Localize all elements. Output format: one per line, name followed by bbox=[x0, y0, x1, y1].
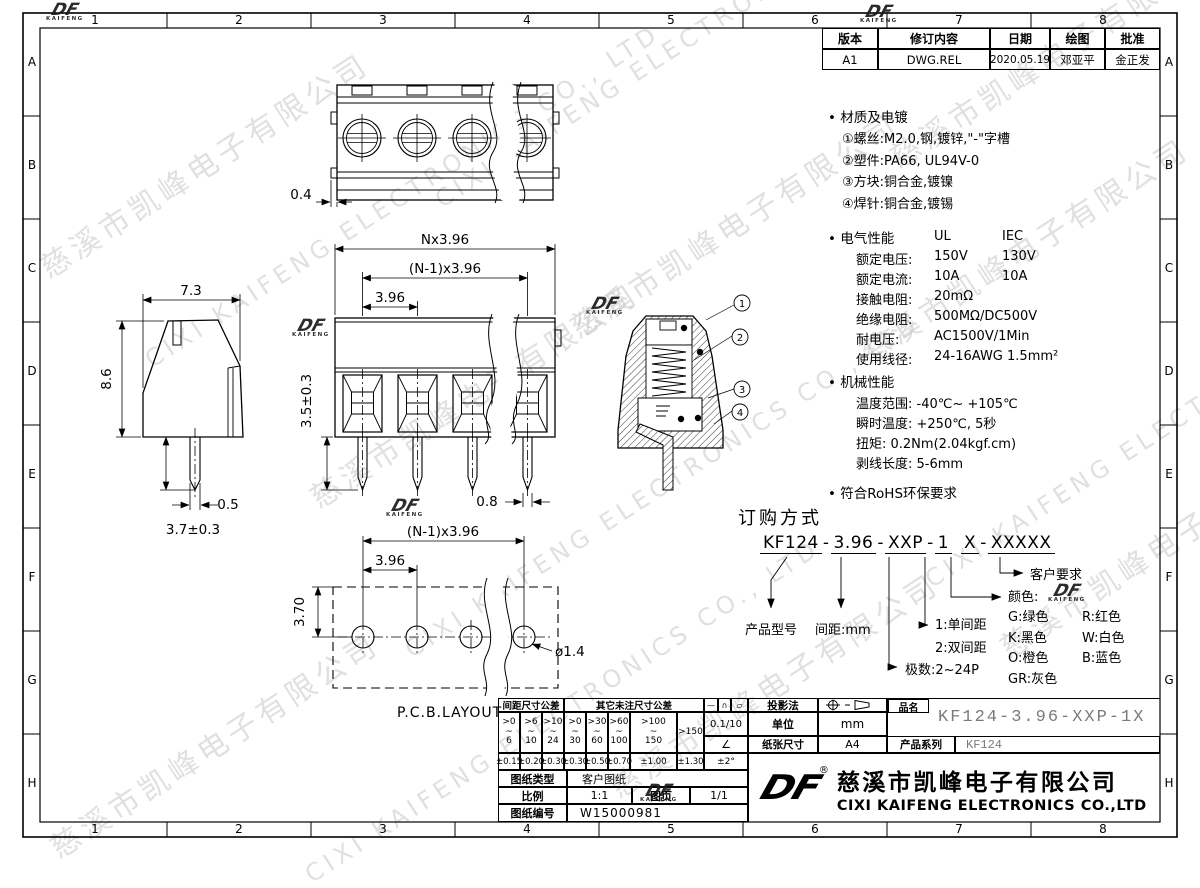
angle-icon: ∠ bbox=[704, 736, 748, 753]
spec-ul: 24-16AWG 1.5mm² bbox=[934, 349, 1002, 369]
tol-value: ±0.30 bbox=[564, 753, 586, 770]
grid-col-label: 5 bbox=[662, 822, 680, 836]
df-stamp-icon: DFKAIFENG bbox=[640, 783, 678, 804]
part-sep: - bbox=[822, 533, 831, 553]
company-area: DF® 慈溪市凯峰电子有限公司 CIXI KAIFENG ELECTRONICS… bbox=[748, 753, 1160, 822]
spec-label: 额定电压: bbox=[856, 249, 934, 269]
grid-row-label: C bbox=[23, 261, 41, 275]
color-code: B:蓝色 bbox=[1082, 647, 1121, 668]
ordering-model-label: 产品型号 bbox=[745, 619, 797, 638]
grid-row-label: H bbox=[23, 776, 41, 790]
tol-range: >30 ~ 60 bbox=[586, 712, 608, 753]
tol-pitch-header: 间距尺寸公差 bbox=[498, 698, 564, 712]
unit-value: mm bbox=[818, 712, 887, 736]
tol-range: >10 ~ 24 bbox=[542, 712, 564, 753]
page-value: 1/1 bbox=[690, 787, 748, 804]
straightness-icon: — bbox=[704, 698, 718, 712]
grid-col-label: 3 bbox=[374, 822, 392, 836]
mechanical-item: 剥线长度: 5-6mm bbox=[856, 453, 1018, 473]
revision-drawn: 邓亚平 bbox=[1050, 49, 1105, 70]
part-pitch: 3.96 bbox=[831, 533, 877, 554]
material-title: 材质及电镀 bbox=[828, 106, 908, 126]
part-series: KF124 bbox=[760, 533, 822, 554]
df-stamp-icon: DFKAIFENG bbox=[386, 498, 424, 519]
rohs-note: 符合RoHS环保要求 bbox=[828, 482, 957, 502]
grid-row-label: G bbox=[1160, 673, 1178, 687]
ordering-title: 订购方式 bbox=[738, 504, 822, 530]
df-stamp-icon: DFKAIFENG bbox=[586, 296, 624, 317]
ordering-poles-label: 极数:2~24P bbox=[905, 659, 979, 678]
paper-label: 纸张尺寸 bbox=[748, 736, 818, 753]
tol-value: ±0.20 bbox=[520, 753, 542, 770]
grid-row-label: F bbox=[1160, 570, 1178, 584]
color-code: W:白色 bbox=[1082, 627, 1124, 648]
ordering-pitch-opt2: 2:双间距 bbox=[935, 637, 987, 656]
grid-row-label: A bbox=[1160, 55, 1178, 69]
pcb-layout-caption: P.C.B.LAYOUT bbox=[397, 705, 502, 721]
revision-header-approved: 批准 bbox=[1105, 28, 1160, 49]
spec-label: 额定电流: bbox=[856, 269, 934, 289]
spec-iec: 130V bbox=[1002, 249, 1036, 269]
dim-front-span: (N-1)x3.96 bbox=[409, 261, 481, 277]
electrical-row: 接触电阻:20mΩ bbox=[856, 289, 1036, 309]
flatness-icon: ▱ bbox=[731, 698, 748, 712]
dim-front-pin-width: 0.8 bbox=[476, 494, 497, 510]
grid-col-label: 4 bbox=[518, 13, 536, 27]
tol-value: ±0.50 bbox=[586, 753, 608, 770]
spec-ul: 20mΩ bbox=[934, 289, 1002, 309]
part-rows: 1 bbox=[935, 533, 952, 554]
color-row: G:绿色R:红色 bbox=[1008, 606, 1124, 627]
material-list: ①螺丝:M2.0,钢,镀锌,"-"字槽 ②塑件:PA66, UL94V-0 ③方… bbox=[842, 128, 1010, 214]
revision-header-date: 日期 bbox=[990, 28, 1050, 49]
grid-col-label: 8 bbox=[1094, 13, 1112, 27]
engineering-drawing-sheet: { "watermark": {"cn": "慈溪市凯峰电子有限公司", "en… bbox=[0, 0, 1200, 850]
dim-side-width: 7.3 bbox=[180, 283, 201, 299]
ordering-part-number: KF124-3.96-XXP-1X-XXXXX bbox=[760, 533, 1055, 554]
color-row: GR:灰色 bbox=[1008, 668, 1124, 689]
df-stamp-icon: DFKAIFENG bbox=[292, 318, 330, 339]
df-stamp-icon: DFKAIFENG bbox=[46, 2, 84, 23]
grid-col-label: 7 bbox=[950, 822, 968, 836]
grid-row-label: B bbox=[1160, 158, 1178, 172]
color-code: K:黑色 bbox=[1008, 627, 1082, 648]
tol-value: ±1.30 bbox=[677, 753, 704, 770]
color-code: O:橙色 bbox=[1008, 647, 1082, 668]
spec-ul: AC1500V/1Min bbox=[934, 329, 1002, 349]
grid-row-label: A bbox=[23, 55, 41, 69]
spec-label: 绝缘电阻: bbox=[856, 309, 934, 329]
dim-pcb-row: 3.70 bbox=[292, 597, 308, 627]
spec-iec: 10A bbox=[1002, 269, 1027, 289]
callout-3: 3 bbox=[739, 385, 745, 396]
material-item: ④焊针:铜合金,镀锡 bbox=[842, 193, 1010, 215]
electrical-row: 额定电压:150V130V bbox=[856, 249, 1036, 269]
mechanical-item: 扭矩: 0.2Nm(2.04kgf.cm) bbox=[856, 433, 1018, 453]
pcb-layout-view: (N-1)x3.96 3.96 3.70 ø1.4 P.C.B.LAYOUT bbox=[292, 524, 585, 721]
spec-label: 使用线径: bbox=[856, 349, 934, 369]
grid-col-label: 7 bbox=[950, 13, 968, 27]
callout-4: 4 bbox=[737, 408, 743, 419]
grid-row-label: G bbox=[23, 673, 41, 687]
grid-col-label: 2 bbox=[230, 13, 248, 27]
electrical-title: 电气性能 bbox=[828, 227, 894, 247]
grid-row-label: B bbox=[23, 158, 41, 172]
part-color: X bbox=[961, 533, 979, 554]
company-name-en: CIXI KAIFENG ELECTRONICS CO.,LTD bbox=[837, 798, 1147, 814]
electrical-row: 绝缘电阻:500MΩ/DC500V bbox=[856, 309, 1036, 329]
electrical-row: 额定电流:10A10A bbox=[856, 269, 1036, 289]
color-code: G:绿色 bbox=[1008, 606, 1082, 627]
color-row: O:橙色B:蓝色 bbox=[1008, 647, 1124, 668]
mechanical-item: 瞬时温度: +250℃, 5秒 bbox=[856, 413, 1018, 433]
tol-range: >60 ~ 100 bbox=[608, 712, 630, 753]
dim-side-pin-length: 3.7±0.3 bbox=[166, 522, 220, 538]
revision-header-content: 修订内容 bbox=[878, 28, 990, 49]
tol-angle-value: ±2° bbox=[704, 753, 748, 770]
revision-content: DWG.REL bbox=[878, 49, 990, 70]
product-series-value: KF124 bbox=[955, 736, 1160, 753]
grid-col-label: 3 bbox=[374, 13, 392, 27]
product-name-label: 品名 bbox=[888, 699, 929, 713]
tol-flatness-value: 0.1/10 bbox=[704, 712, 748, 736]
product-series-text: KF124 bbox=[966, 738, 1002, 752]
tol-range: >6 ~ 10 bbox=[520, 712, 542, 753]
color-row: K:黑色W:白色 bbox=[1008, 627, 1124, 648]
grid-col-label: 4 bbox=[518, 822, 536, 836]
mechanical-item: 温度范围: -40℃~ +105℃ bbox=[856, 393, 1018, 413]
grid-col-label: 6 bbox=[806, 13, 824, 27]
grid-row-label: C bbox=[1160, 261, 1178, 275]
side-view: 7.3 8.6 0.5 3.7±0.3 bbox=[99, 283, 243, 538]
arc-icon: ∩ bbox=[718, 698, 731, 712]
ordering-color-list: G:绿色R:红色 K:黑色W:白色 O:橙色B:蓝色 GR:灰色 bbox=[1008, 606, 1124, 688]
grid-col-label: 6 bbox=[806, 822, 824, 836]
part-sep: - bbox=[979, 533, 988, 553]
mechanical-title: 机械性能 bbox=[828, 371, 894, 391]
ordering-color-title: 颜色: bbox=[1008, 586, 1038, 605]
callout-1: 1 bbox=[739, 299, 745, 310]
dim-front-pin-length: 3.5±0.3 bbox=[299, 374, 315, 428]
spec-label: 接触电阻: bbox=[856, 289, 934, 309]
ordering-pitch-opt1: 1:单间距 bbox=[935, 614, 987, 633]
part-custom: XXXXX bbox=[988, 533, 1055, 554]
revision-header-drawn: 绘图 bbox=[1050, 28, 1105, 49]
electrical-row: 耐电压:AC1500V/1Min bbox=[856, 329, 1036, 349]
dim-pcb-span: (N-1)x3.96 bbox=[407, 524, 479, 540]
product-name-area: 品名 KF124-3.96-XXP-1X bbox=[887, 698, 1160, 736]
paper-value: A4 bbox=[818, 736, 887, 753]
front-view: Nx3.96 (N-1)x3.96 3.96 3.5±0.3 0.8 bbox=[299, 232, 561, 510]
revision-header-version: 版本 bbox=[822, 28, 878, 49]
electrical-col-iec: IEC bbox=[1002, 229, 1023, 244]
grid-row-label: F bbox=[23, 570, 41, 584]
spec-ul: 500MΩ/DC500V bbox=[934, 309, 1002, 329]
callout-2: 2 bbox=[737, 333, 743, 344]
top-view: 0.4 bbox=[290, 82, 559, 207]
dim-front-pitch: 3.96 bbox=[375, 290, 405, 306]
color-code: GR:灰色 bbox=[1008, 668, 1082, 689]
electrical-row: 使用线径:24-16AWG 1.5mm² bbox=[856, 349, 1036, 369]
grid-col-label: 1 bbox=[86, 822, 104, 836]
df-logo-icon: DF bbox=[756, 768, 825, 807]
part-sep: - bbox=[926, 533, 935, 553]
revision-version: A1 bbox=[822, 49, 878, 70]
tol-value: ±0.70 bbox=[608, 753, 630, 770]
part-poles: XXP bbox=[885, 533, 926, 554]
material-item: ①螺丝:M2.0,钢,镀锌,"-"字槽 bbox=[842, 128, 1010, 150]
grid-row-label: D bbox=[23, 364, 41, 378]
grid-col-label: 1 bbox=[86, 13, 104, 27]
projection-label: 投影法 bbox=[748, 698, 818, 712]
grid-row-label: E bbox=[23, 467, 41, 481]
grid-row-label: E bbox=[1160, 467, 1178, 481]
sheet-no-label: 图纸编号 bbox=[498, 804, 567, 822]
spec-label: 耐电压: bbox=[856, 329, 934, 349]
tol-range: >0 ~ 30 bbox=[564, 712, 586, 753]
revision-approved: 金正发 bbox=[1105, 49, 1160, 70]
df-stamp-icon: DFKAIFENG bbox=[860, 4, 898, 25]
scale-value: 1:1 bbox=[567, 787, 632, 804]
dim-pcb-pitch: 3.96 bbox=[375, 553, 405, 569]
revision-date: 2020.05.19 bbox=[990, 49, 1050, 70]
material-item: ③方块:铜合金,镀镍 bbox=[842, 171, 1010, 193]
dim-side-height: 8.6 bbox=[99, 368, 115, 389]
first-angle-projection-icon bbox=[818, 698, 887, 712]
tol-value: ±0.30 bbox=[542, 753, 564, 770]
tol-range: >0 ~ 6 bbox=[498, 712, 520, 753]
electrical-col-ul: UL bbox=[934, 229, 951, 244]
grid-col-label: 8 bbox=[1094, 822, 1112, 836]
spec-ul: 150V bbox=[934, 249, 1002, 269]
part-sep: - bbox=[876, 533, 885, 553]
grid-row-label: H bbox=[1160, 776, 1178, 790]
df-stamp-icon: DFKAIFENG bbox=[1048, 583, 1086, 604]
dim-side-pin-width: 0.5 bbox=[217, 497, 238, 513]
dim-pcb-hole: ø1.4 bbox=[555, 644, 585, 660]
sheet-type-label: 图纸类型 bbox=[498, 770, 567, 787]
company-logo: DF® bbox=[762, 765, 829, 811]
tol-other-header: 其它未注尺寸公差 bbox=[564, 698, 704, 712]
product-series-label: 产品系列 bbox=[887, 736, 955, 753]
sheet-no-value: W15000981 bbox=[567, 804, 748, 822]
material-item: ②塑件:PA66, UL94V-0 bbox=[842, 150, 1010, 172]
ordering-pitch-label: 间距:mm bbox=[815, 619, 871, 638]
title-block: 间距尺寸公差 其它未注尺寸公差 — ∩ ▱ >0 ~ 6 >6 ~ 10 >10… bbox=[498, 698, 1160, 822]
tol-range: >150 bbox=[677, 712, 704, 753]
section-view: 1 2 3 4 bbox=[618, 295, 750, 490]
dim-top-offset: 0.4 bbox=[290, 187, 311, 203]
tol-range: >100 ~ 150 bbox=[630, 712, 677, 753]
color-code: R:红色 bbox=[1082, 606, 1121, 627]
spec-ul: 10A bbox=[934, 269, 1002, 289]
mechanical-list: 温度范围: -40℃~ +105℃ 瞬时温度: +250℃, 5秒 扭矩: 0.… bbox=[856, 393, 1018, 473]
unit-label: 单位 bbox=[748, 712, 818, 736]
electrical-table: 额定电压:150V130V 额定电流:10A10A 接触电阻:20mΩ 绝缘电阻… bbox=[856, 249, 1036, 369]
grid-col-label: 5 bbox=[662, 13, 680, 27]
company-name-cn: 慈溪市凯峰电子有限公司 bbox=[837, 763, 1147, 797]
product-name-value: KF124-3.96-XXP-1X bbox=[938, 708, 1145, 727]
grid-col-label: 2 bbox=[230, 822, 248, 836]
dim-front-total: Nx3.96 bbox=[421, 232, 469, 248]
tol-value: ±1.00 bbox=[630, 753, 677, 770]
grid-row-label: D bbox=[1160, 364, 1178, 378]
tol-value: ±0.15 bbox=[498, 753, 520, 770]
scale-label: 比例 bbox=[498, 787, 567, 804]
